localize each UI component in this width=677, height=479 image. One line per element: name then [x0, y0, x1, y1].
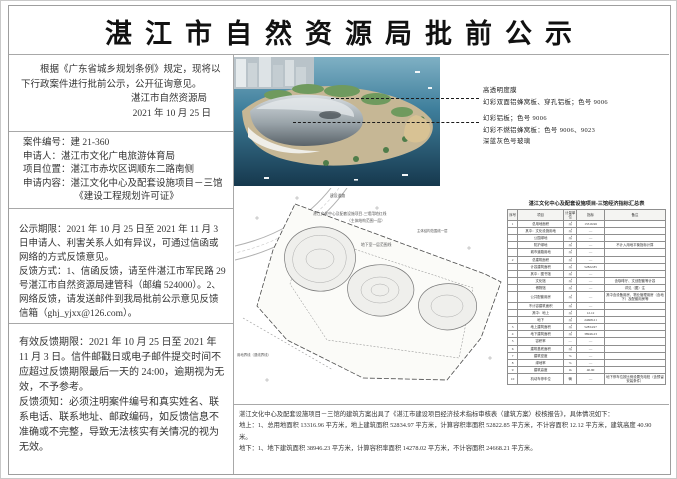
annotation-line: 幻彩不燃铝蜂窝板：色号 9006、9023	[483, 125, 595, 137]
table-cell	[604, 235, 665, 242]
table-cell: 不计入用地平衡指标计算	[604, 242, 665, 249]
table-cell: —	[564, 338, 577, 345]
table-cell: ㎡	[564, 249, 577, 256]
table-cell	[508, 270, 518, 277]
table-header-cell: 备注	[604, 210, 665, 221]
table-cell	[604, 331, 665, 338]
table-cell: 9	[508, 366, 518, 373]
table-cell	[508, 303, 518, 310]
table-cell: 52834.97	[577, 324, 605, 331]
table-cell	[604, 359, 665, 366]
table-cell: 3	[508, 324, 518, 331]
table-cell: %	[564, 352, 577, 359]
table-row: 公园绿地㎡—	[508, 235, 666, 242]
footer-line-1: 湛江文化中心及配套设施项目－三馆的建筑方案出具了《湛江市建设项目经济技术指标审核…	[239, 409, 665, 420]
leader-line-2	[293, 122, 479, 123]
table-cell	[508, 310, 518, 317]
table-header-cell: 计量单位	[564, 210, 577, 221]
table-cell	[604, 338, 665, 345]
road-label: 建设道路	[330, 193, 345, 198]
intro-block: 根据《广东省城乡规划条例》规定，现将以下行政案件进行批前公示，公开征询意见。 湛…	[21, 63, 223, 121]
table-cell: 建筑高度	[518, 366, 564, 373]
notice-period: 公示期限：2021 年 10 月 25 日至 2021 年 11 月 3 日申请…	[19, 223, 227, 265]
permit-type: 《建设工程规划许可证》	[23, 191, 229, 205]
table-row: 公共配套用房㎡—其中含设备用房、物业管理用房（含地下）及配套用房等	[508, 291, 666, 302]
annotation-line: 幻彩铝板；色号 9006	[483, 113, 595, 125]
table-cell: —	[577, 359, 605, 366]
table-cell: 其中：图书馆	[518, 270, 564, 277]
page-title: 湛江市自然资源局批前公示	[1, 12, 676, 51]
table-cell: —	[577, 284, 605, 291]
table-cell: —	[577, 291, 605, 302]
table-cell	[604, 228, 665, 235]
footer-line-3: 地下：1、地下建筑面积 38946.23 平方米，计算容积率面积 14278.0…	[239, 443, 665, 454]
table-cell	[508, 277, 518, 284]
table-cell: ㎡	[564, 256, 577, 263]
table-row: 博物馆㎡—详见（图）注	[508, 284, 666, 291]
project-location: 项目位置：湛江市赤坎区调顺东二路南侧	[23, 164, 229, 178]
table-cell: 含咖啡厅、文创配套等计容	[604, 277, 665, 284]
table-cell: 8	[508, 359, 518, 366]
table-cell: ㎡	[564, 284, 577, 291]
left-divider-3	[9, 323, 233, 324]
table-row: 7建筑密度%—	[508, 352, 666, 359]
table-cell: 文化馆	[518, 277, 564, 284]
table-cell	[508, 284, 518, 291]
table-cell: 地下	[518, 317, 564, 324]
basement-label: 地下室一层范围线	[361, 242, 392, 247]
table-cell: 城市道路用地	[518, 249, 564, 256]
table-row: 文化馆㎡—含咖啡厅、文创配套等计容	[508, 277, 666, 284]
case-info-block: 案件编号：建 21-360 申请人：湛江市文化广电旅游体育局 项目位置：湛江市赤…	[23, 137, 229, 205]
table-row: 10机动车停车位辆—地下停车位按比例设置充电桩（含预留安装条件）	[508, 373, 666, 384]
table-row: 地下㎡24668.21	[508, 317, 666, 324]
roof-opening	[319, 111, 341, 119]
table-cell: ㎡	[564, 310, 577, 317]
boundary-label: 用地界线（退线界线）	[237, 352, 271, 357]
table-cell: 4	[508, 331, 518, 338]
table-cell: 地上建筑面积	[518, 324, 564, 331]
table-cell: 1	[508, 221, 518, 228]
table-title: 湛江文化中心及配套设施项目-三馆经济指标汇总表	[507, 200, 666, 207]
city-buildings	[234, 57, 314, 89]
table-cell: 5	[508, 338, 518, 345]
table-cell	[508, 291, 518, 302]
table-cell: 其中：文化设施用地	[518, 228, 564, 235]
table-cell: ㎡	[564, 331, 577, 338]
table-cell: 地下建筑面积	[518, 331, 564, 338]
title-divider	[9, 54, 669, 55]
table-cell	[508, 249, 518, 256]
table-row: 其中：地上㎡12.12	[508, 310, 666, 317]
table-cell: —	[577, 303, 605, 310]
feedback-methods: 反馈方式：1、信函反馈，请至件湛江市军民路 29 号湛江市自然资源局建管科（邮编…	[19, 265, 227, 321]
table-cell	[508, 228, 518, 235]
applicant: 申请人：湛江市文化广电旅游体育局	[23, 151, 229, 165]
table-row: 计容建筑面积㎡52822.85	[508, 263, 666, 270]
table-body: 1总用地面积㎡13316.96其中：文化设施用地㎡—公园绿地㎡—防护绿地㎡—不计…	[508, 221, 666, 385]
table-cell	[604, 310, 665, 317]
footer-line-2: 地上：1、总用地面积 13316.96 平方米，地上建筑面积 52834.97 …	[239, 420, 665, 443]
table-header-row: 序号项目计量单位指标备注	[508, 210, 666, 221]
table-cell: ㎡	[564, 277, 577, 284]
table-cell	[508, 242, 518, 249]
table-cell	[604, 249, 665, 256]
table-row: 不计容建筑面积㎡—	[508, 303, 666, 310]
redline-sublabel: （主体结构范围一层）	[347, 218, 385, 223]
table-cell: 详见（图）注	[604, 284, 665, 291]
site-plan: 建设道路 湛江文化中心及配套设施项目-三馆用地红线 （主体结构范围一层） 主体结…	[235, 188, 505, 402]
economic-indicators-table: 湛江文化中心及配套设施项目-三馆经济指标汇总表 序号项目计量单位指标备注 1总用…	[507, 200, 666, 385]
table-cell: 总用地面积	[518, 221, 564, 228]
table-cell: 6	[508, 345, 518, 352]
table-row: 5容积率——	[508, 338, 666, 345]
table-header-cell: 项目	[518, 210, 564, 221]
table-cell: 7	[508, 352, 518, 359]
table-cell: 容积率	[518, 338, 564, 345]
table-cell: —	[577, 277, 605, 284]
table-cell: %	[564, 359, 577, 366]
table-cell: 10	[508, 373, 518, 384]
table-cell: —	[577, 352, 605, 359]
table-cell: 40.90	[577, 366, 605, 373]
annotation-line: 幻彩双面铝蜂窝板、穿孔铝板；色号 9006	[483, 97, 608, 109]
annotation-line: 深蓝灰色号玻璃	[483, 136, 595, 148]
table-cell: 建筑基底面积	[518, 345, 564, 352]
table-cell: 建筑密度	[518, 352, 564, 359]
feedback-requirements: 反馈须知：必须注明案件编号和真实姓名、联系电话、联系地址、邮政编码，如反馈信息不…	[19, 395, 227, 455]
table-cell: 公园绿地	[518, 235, 564, 242]
table-cell	[604, 324, 665, 331]
issuing-authority: 湛江市自然资源局	[21, 92, 223, 107]
table-row: 2总建筑面积㎡—	[508, 256, 666, 263]
material-annotation-2: 幻彩铝板；色号 9006幻彩不燃铝蜂窝板：色号 9006、9023深蓝灰色号玻璃	[483, 113, 595, 148]
leader-line-1	[331, 98, 479, 99]
table-cell: —	[577, 235, 605, 242]
table-cell: 绿地率	[518, 359, 564, 366]
annotation-line: 高透明度膜	[483, 85, 608, 97]
valid-feedback-block: 有效反馈期限：2021 年 10 月 25 日至 2021 年 11 月 3 日…	[19, 335, 227, 455]
table-cell	[508, 317, 518, 324]
table-cell: m	[564, 366, 577, 373]
table-row: 其中：图书馆㎡—	[508, 270, 666, 277]
table-cell	[604, 263, 665, 270]
table-cell: —	[577, 338, 605, 345]
table-cell: ㎡	[564, 228, 577, 235]
table-cell: —	[577, 373, 605, 384]
table-row: 6建筑基底面积㎡—	[508, 345, 666, 352]
table-cell: 12.12	[577, 310, 605, 317]
table-cell	[604, 317, 665, 324]
table-row: 1总用地面积㎡13316.96	[508, 221, 666, 228]
table-cell: ㎡	[564, 263, 577, 270]
table-cell: 公共配套用房	[518, 291, 564, 302]
table-cell: ㎡	[564, 291, 577, 302]
right-divider	[233, 404, 669, 405]
table-row: 防护绿地㎡—不计入用地平衡指标计算	[508, 242, 666, 249]
table-cell: ㎡	[564, 317, 577, 324]
table-cell: ㎡	[564, 235, 577, 242]
table-cell: 计容建筑面积	[518, 263, 564, 270]
issue-date: 2021 年 10 月 25 日	[21, 107, 223, 122]
structure-extent-label: 主体结构范围线一层	[417, 228, 448, 233]
table-cell: —	[577, 228, 605, 235]
intro-text: 根据《广东省城乡规划条例》规定，现将以下行政案件进行批前公示，公开征询意见。	[21, 63, 223, 92]
table-cell: 辆	[564, 373, 577, 384]
table-cell: 机动车停车位	[518, 373, 564, 384]
table-cell: ㎡	[564, 345, 577, 352]
table-cell: 总建筑面积	[518, 256, 564, 263]
table-header-cell: 指标	[577, 210, 605, 221]
table-cell	[604, 366, 665, 373]
table-cell: ㎡	[564, 324, 577, 331]
table-row: 城市道路用地㎡—	[508, 249, 666, 256]
table-cell: —	[577, 256, 605, 263]
table-cell: 52822.85	[577, 263, 605, 270]
case-number: 案件编号：建 21-360	[23, 137, 229, 151]
table-cell: 博物馆	[518, 284, 564, 291]
table-cell: 其中含设备用房、物业管理用房（含地下）及配套用房等	[604, 291, 665, 302]
table-cell	[604, 221, 665, 228]
valid-feedback-deadline: 有效反馈期限：2021 年 10 月 25 日至 2021 年 11 月 3 日…	[19, 335, 227, 395]
table-cell: 2	[508, 256, 518, 263]
table-cell: 防护绿地	[518, 242, 564, 249]
table-cell	[508, 235, 518, 242]
table-cell: ㎡	[564, 270, 577, 277]
table-cell	[604, 270, 665, 277]
table-cell	[604, 256, 665, 263]
notice-period-block: 公示期限：2021 年 10 月 25 日至 2021 年 11 月 3 日申请…	[19, 223, 227, 321]
table-cell	[508, 263, 518, 270]
table-cell	[604, 352, 665, 359]
table-cell: ㎡	[564, 221, 577, 228]
footer-notes: 湛江文化中心及配套设施项目－三馆的建筑方案出具了《湛江市建设项目经济技术指标审核…	[239, 409, 665, 454]
table-cell: 13316.96	[577, 221, 605, 228]
table-row: 8绿地率%—	[508, 359, 666, 366]
table-row: 9建筑高度m40.90	[508, 366, 666, 373]
redline-label: 湛江文化中心及配套设施项目-三馆用地红线	[313, 211, 387, 216]
table-cell: ㎡	[564, 242, 577, 249]
public-notice-document: 湛江市自然资源局批前公示 根据《广东省城乡规划条例》规定，现将以下行政案件进行批…	[0, 0, 677, 479]
application-content: 申请内容：湛江文化中心及配套设施项目－三馆	[23, 178, 229, 192]
table-cell: —	[577, 345, 605, 352]
table-header-cell: 序号	[508, 210, 518, 221]
table-cell: 24668.21	[577, 317, 605, 324]
table-cell	[604, 345, 665, 352]
table-cell	[604, 303, 665, 310]
table-cell: 地下停车位按比例设置充电桩（含预留安装条件）	[604, 373, 665, 384]
table-cell: ㎡	[564, 303, 577, 310]
table-row: 4地下建筑面积㎡38946.23	[508, 331, 666, 338]
left-divider-2	[9, 208, 233, 209]
table-cell: 不计容建筑面积	[518, 303, 564, 310]
table-cell: —	[577, 249, 605, 256]
table-row: 3地上建筑面积㎡52834.97	[508, 324, 666, 331]
table-row: 其中：文化设施用地㎡—	[508, 228, 666, 235]
table-cell: —	[577, 242, 605, 249]
table-cell: —	[577, 270, 605, 277]
left-divider-1	[9, 131, 233, 132]
table-cell: 其中：地上	[518, 310, 564, 317]
material-annotation-1: 高透明度膜幻彩双面铝蜂窝板、穿孔铝板；色号 9006	[483, 85, 608, 108]
table-cell: 38946.23	[577, 331, 605, 338]
